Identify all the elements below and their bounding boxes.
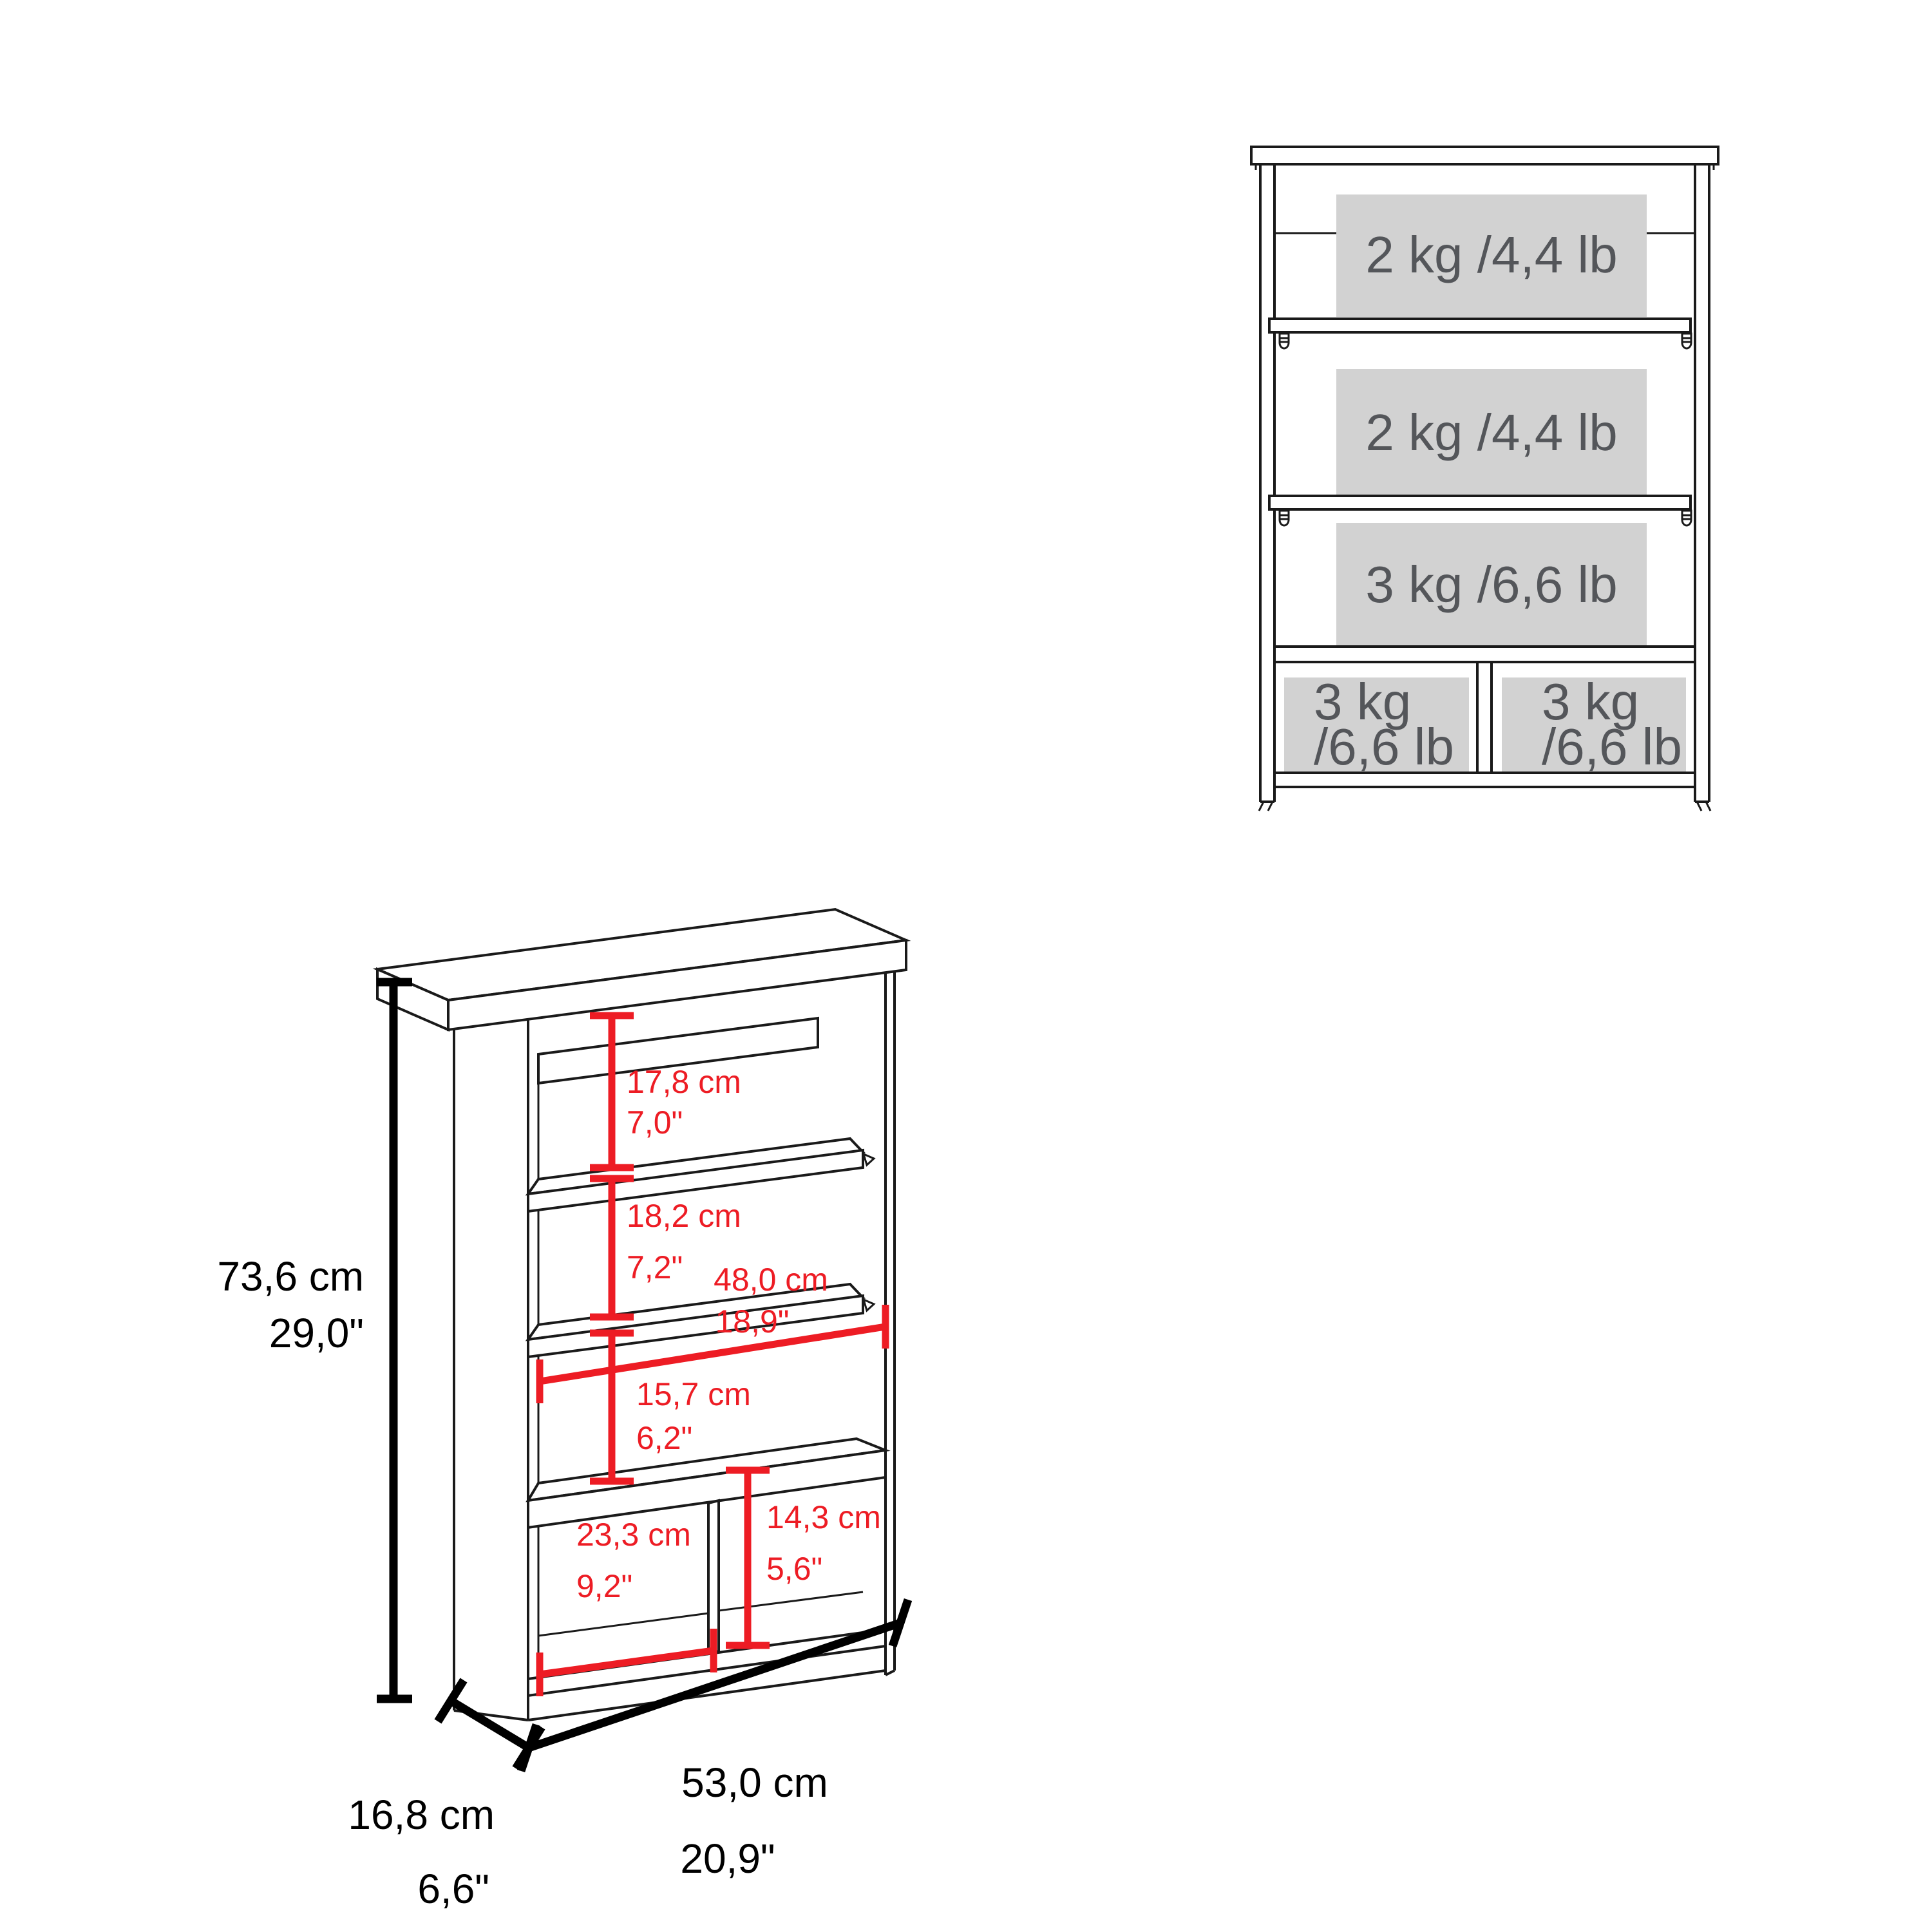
height-dimension-line [377,982,412,1699]
capacity-label-1: 2 kg /4,4 lb [1365,226,1617,283]
cubby-divider [1477,662,1492,773]
cubby-width-cm: 23,3 cm [576,1517,691,1553]
depth-dimension-in: 6,6" [417,1866,489,1912]
cubby-width-in: 9,2" [576,1568,632,1604]
left-side-panel [1260,164,1274,802]
lower-section-cm: 15,7 cm [636,1376,751,1412]
height-dimension-cm: 73,6 cm [217,1253,364,1300]
left-side-panel [454,999,528,1720]
capacity-label-cubby-right-2: /6,6 lb [1542,718,1682,775]
cubby-height-in: 5,6" [766,1551,822,1587]
fixed-shelf [1274,647,1695,662]
capacity-label-cubby-left-2: /6,6 lb [1314,718,1454,775]
lower-section-in: 6,2" [636,1420,692,1456]
height-dimension-in: 29,0" [269,1310,364,1356]
wall-cleat-feet-marks [1259,802,1710,811]
width-dimension-cm: 53,0 cm [681,1759,828,1806]
cubby-height-cm: 14,3 cm [766,1499,881,1535]
shelf-pin-icon [1280,511,1289,526]
capacity-label-2: 2 kg /4,4 lb [1365,404,1617,461]
shelf-pin-icon [864,1300,874,1311]
top-section-in: 7,0" [627,1104,683,1141]
middle-section-in: 7,2" [627,1249,683,1285]
shelf-pin-icon [1682,334,1691,348]
front-view: 2 kg /4,4 lb 2 kg /4,4 lb 3 kg /6,6 lb 3… [1251,147,1718,811]
top-section-cm: 17,8 cm [627,1064,741,1100]
perspective-view [377,909,906,1720]
page: { "front_view": { "areas": [ {"label": "… [0,0,1932,1932]
shelf-pin-icon [1682,511,1691,526]
top-board [1251,147,1718,164]
shelf-pin-icon [1280,334,1289,348]
shelf-pin-icon [864,1154,874,1165]
shelf-width-in: 18,9" [715,1303,789,1340]
lower-section-dimension-line [590,1333,634,1481]
shelf-2 [1269,496,1690,509]
middle-section-cm: 18,2 cm [627,1198,741,1234]
capacity-label-3: 3 kg /6,6 lb [1365,556,1617,613]
furniture-dimension-diagram: 2 kg /4,4 lb 2 kg /4,4 lb 3 kg /6,6 lb 3… [0,0,1932,1932]
width-dimension-in: 20,9" [680,1835,775,1882]
shelf-1 [1269,319,1690,332]
right-side-panel [1695,164,1709,802]
depth-dimension-cm: 16,8 cm [348,1792,495,1838]
shelf-width-cm: 48,0 cm [714,1262,828,1298]
